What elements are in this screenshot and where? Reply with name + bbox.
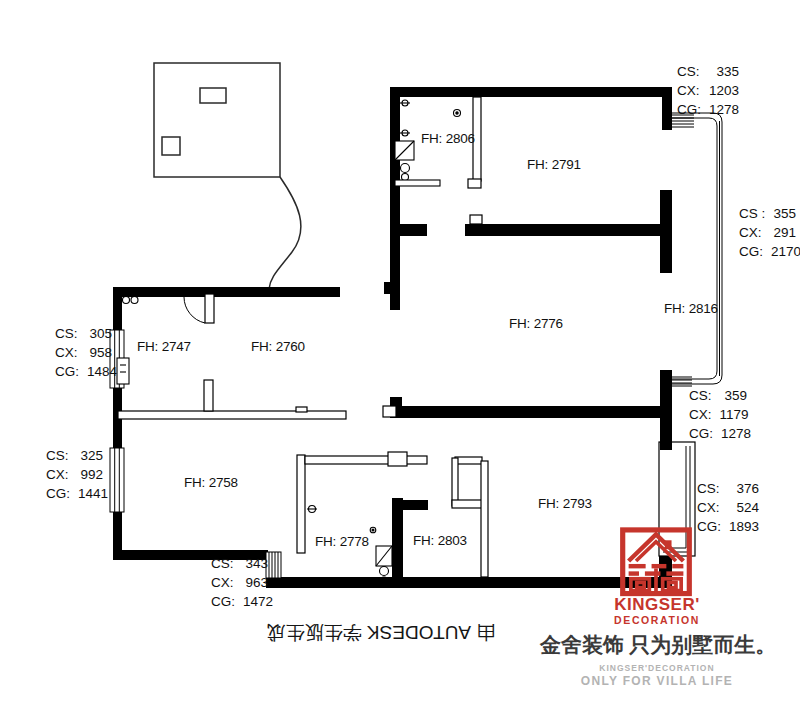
dimension-group-bottom: CS:343 CX:963 CG:1472 [211, 554, 268, 611]
counter-icon [395, 180, 440, 186]
dimension-group-left-lower: CS:325 CX:992 CG:1441 [46, 446, 103, 503]
dim-row: CG:1472 [211, 592, 268, 611]
switch-icon [307, 506, 317, 513]
dimension-group-left-upper: CS:305 CX:958 CG:1484 [55, 324, 112, 381]
dim-row: CX:1203 [677, 81, 739, 100]
kingser-logo-icon [619, 524, 693, 598]
dim-row: CX:291 [739, 223, 796, 242]
dimension-group-right-upper: CS :355 CX:291 CG:2170 [739, 204, 796, 261]
bay-window [672, 113, 722, 386]
dim-row: CS:359 [689, 386, 747, 405]
room-label-fh2803: FH: 2803 [413, 533, 467, 548]
dimension-group-top-right: CS:335 CX:1203 CG:1278 [677, 62, 739, 119]
radiator-icon [117, 358, 129, 384]
room-label-fh2806: FH: 2806 [421, 131, 475, 146]
dim-row: CG:2170 [739, 242, 796, 261]
room-label-fh2747: FH: 2747 [137, 339, 191, 354]
dim-row: CS:305 [55, 324, 112, 343]
door-swing-icon [184, 294, 214, 323]
sink-icon [376, 546, 392, 566]
room-label-fh2776: FH: 2776 [509, 316, 563, 331]
dim-row: CG:1278 [689, 424, 747, 443]
dimension-group-right-middle: CS:359 CX:1179 CG:1278 [689, 386, 747, 443]
dim-row: CS :355 [739, 204, 796, 223]
room-label-fh2760: FH: 2760 [251, 339, 305, 354]
knob-icon [370, 527, 376, 533]
window-hatch-bottom [672, 377, 692, 386]
dim-row: CG:1484 [55, 362, 112, 381]
floorplan-canvas: FH: 2806 FH: 2791 FH: 2776 FH: 2816 FH: … [0, 0, 800, 707]
dim-row: CG:1278 [677, 100, 739, 119]
room-label-fh2758: FH: 2758 [184, 475, 238, 490]
dim-row: CG:1441 [46, 484, 103, 503]
dim-row: CX:992 [46, 465, 103, 484]
light-icon [123, 297, 139, 304]
brand-slogan-chinese: 金舍装饰 只为别墅而生。 [538, 631, 778, 659]
dim-row: CG:1893 [697, 517, 759, 536]
switch-icon [400, 100, 410, 106]
dim-row: CS:325 [46, 446, 103, 465]
room-label-fh2793: FH: 2793 [538, 496, 592, 511]
brand-name-english: KINGSER'DECORATION [592, 663, 722, 673]
dim-row: CS:376 [697, 479, 759, 498]
dim-row: CS:343 [211, 554, 268, 573]
dim-row: CX:963 [211, 573, 268, 592]
dim-row: CX:958 [55, 343, 112, 362]
switch-icon [400, 130, 410, 136]
brand-slogan-english: ONLY FOR VILLA LIFE [578, 674, 736, 688]
wall-right-lower [660, 370, 672, 450]
room-label-fh2791: FH: 2791 [527, 157, 581, 172]
toilet-icon [401, 164, 410, 181]
autodesk-watermark: 由 AUTODESK 学生版生成 [250, 619, 512, 645]
knob-icon [454, 110, 461, 117]
dim-row: CX:524 [697, 498, 759, 517]
dim-row: CS:335 [677, 62, 739, 81]
bottom-window-hatch [266, 552, 281, 578]
room-label-fh2778: FH: 2778 [315, 534, 369, 549]
room-label-fh2816: FH: 2816 [664, 301, 718, 316]
sink-icon [395, 141, 414, 160]
brand-subtitle: DECORATION [592, 614, 722, 626]
brand-title: KINGSER' [592, 595, 722, 615]
annex-room [154, 63, 301, 289]
dim-row: CX:1179 [689, 405, 747, 424]
dimension-group-right-lower: CS:376 CX:524 CG:1893 [697, 479, 759, 536]
